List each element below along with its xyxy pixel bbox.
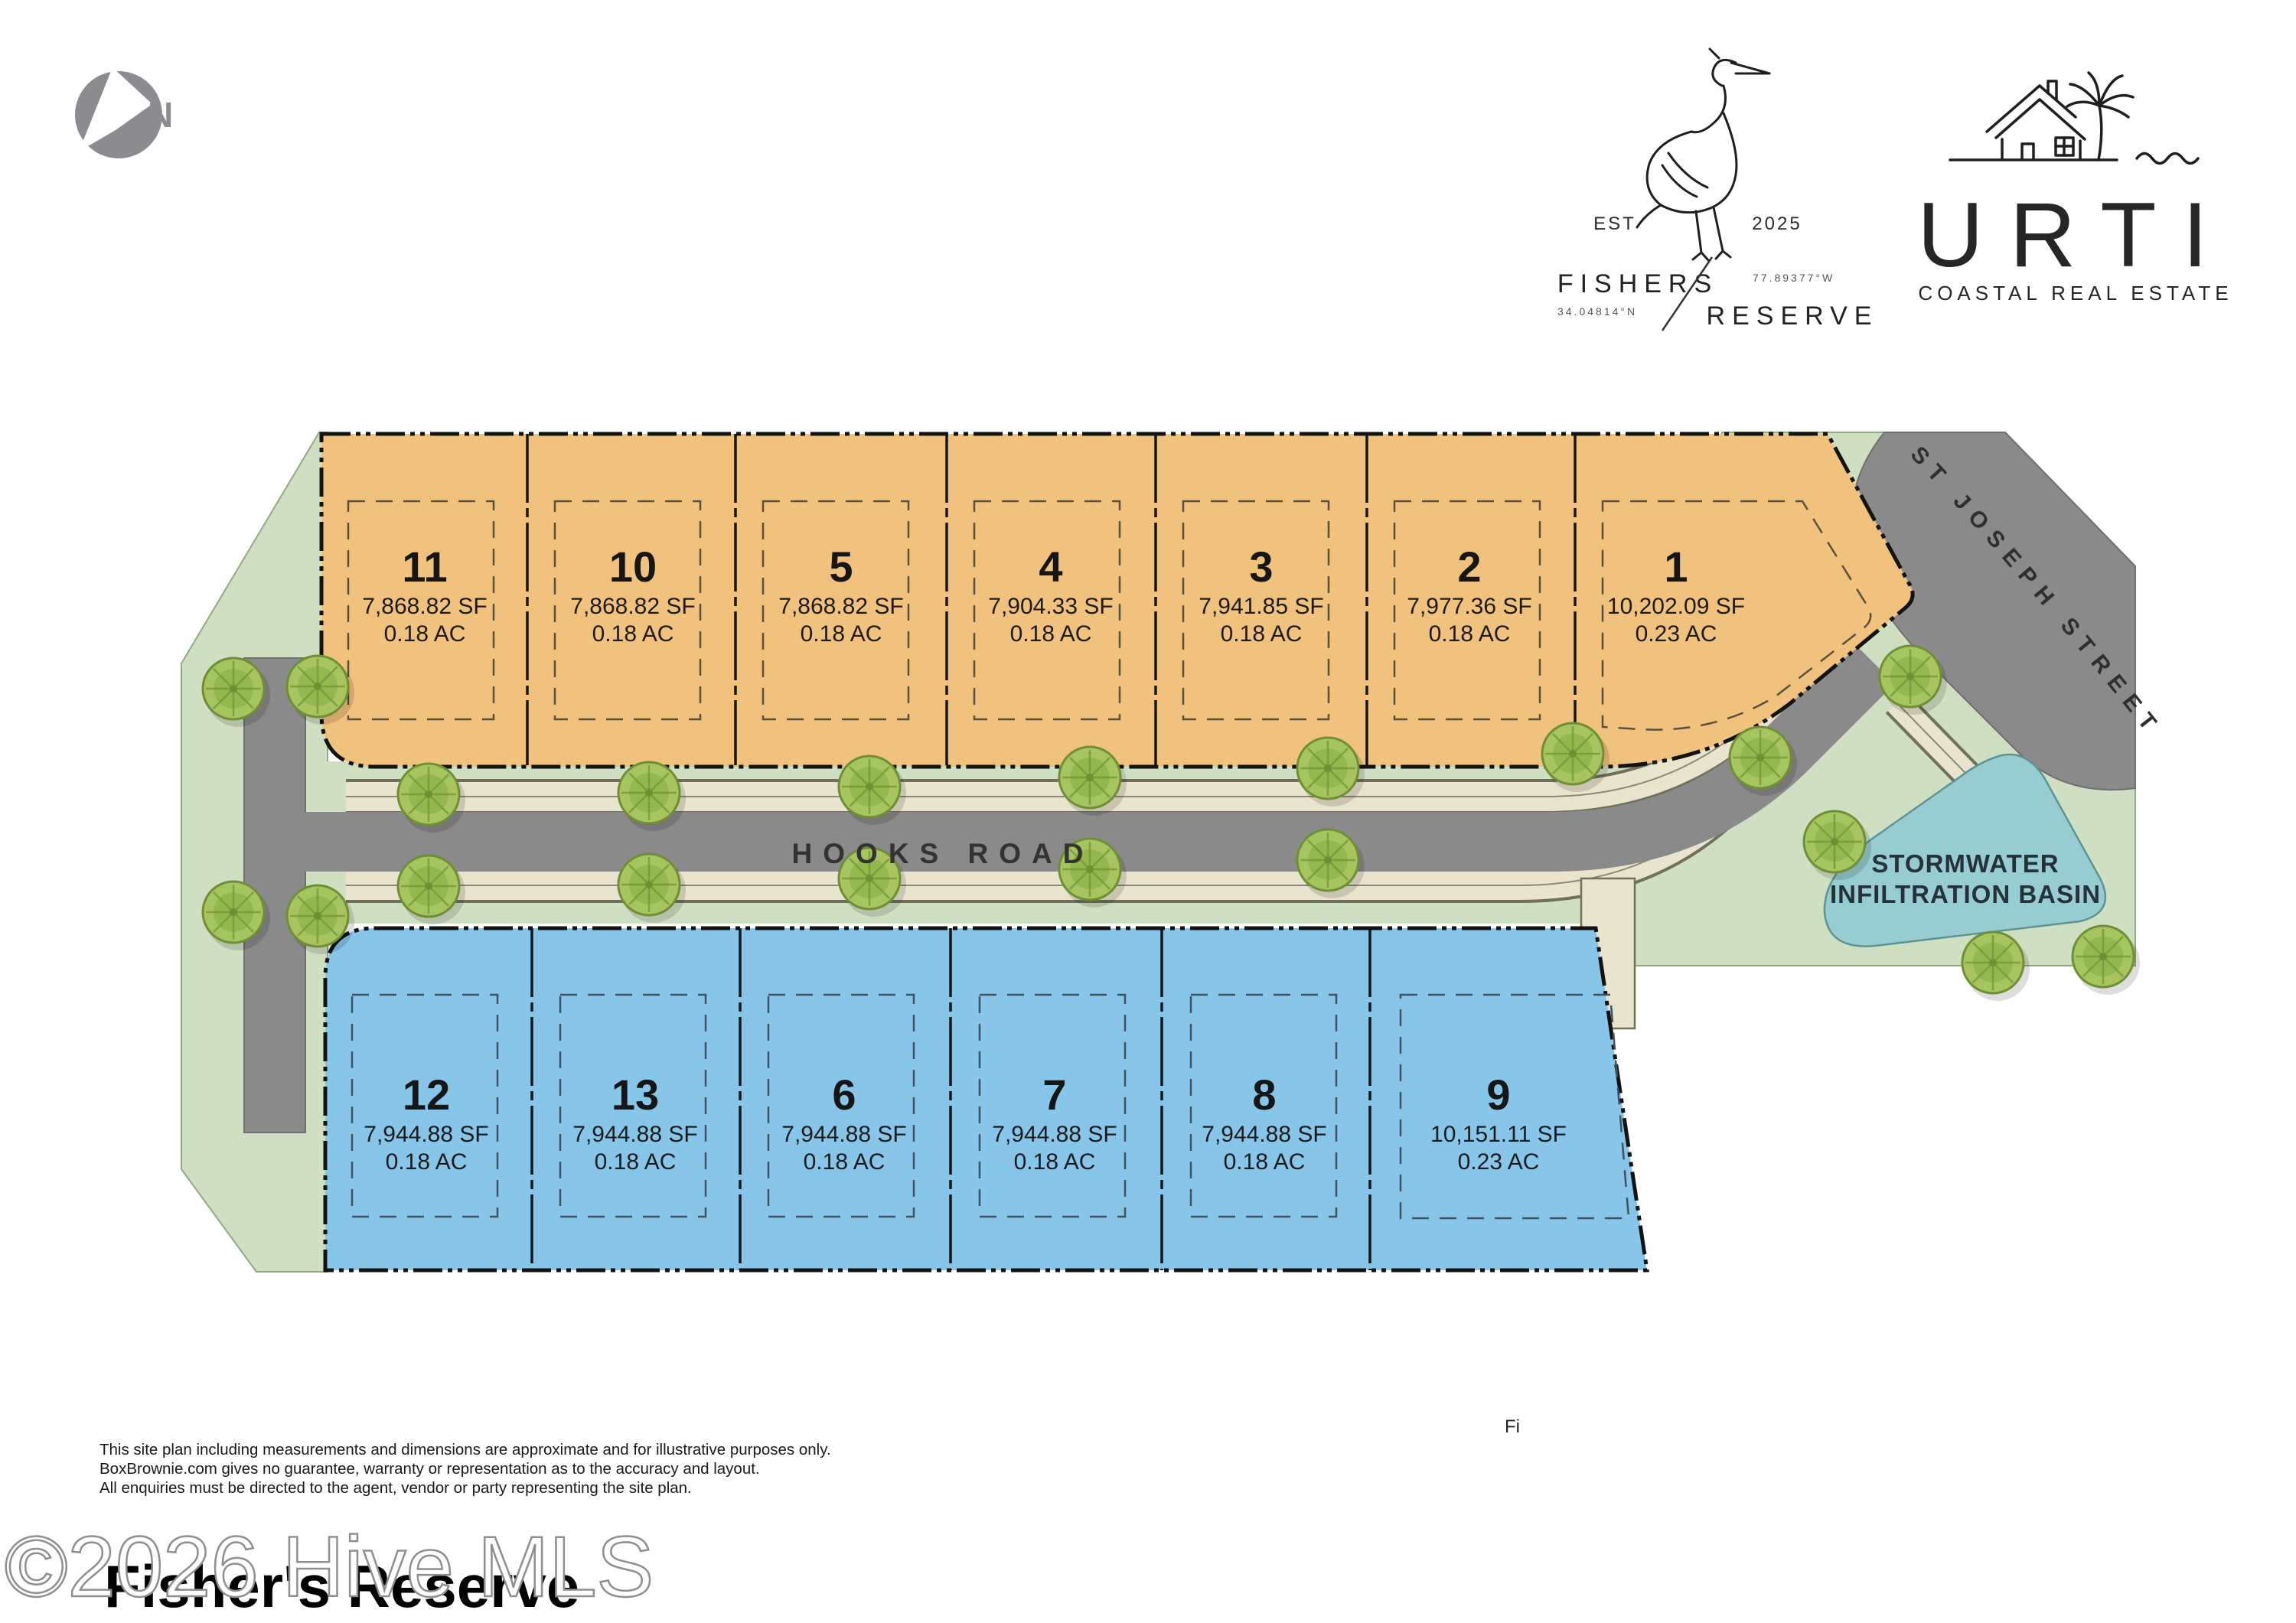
lot-area-ac: 0.18 AC	[1221, 621, 1303, 647]
lot-area-sf: 7,868.82 SF	[570, 594, 695, 619]
lot-area-sf: 7,944.88 SF	[1202, 1122, 1326, 1147]
lot-area-ac: 0.18 AC	[804, 1149, 885, 1175]
year-label: 2025	[1752, 213, 1802, 234]
urti-tagline: COASTAL REAL ESTATE	[1918, 282, 2232, 305]
lot-number: 12	[403, 1071, 450, 1119]
lot-area-ac: 0.23 AC	[1636, 621, 1717, 647]
heron-icon	[1637, 49, 1769, 260]
lot-area-sf: 7,944.88 SF	[364, 1122, 488, 1147]
lot-area-ac: 0.18 AC	[595, 1149, 677, 1175]
lot-number: 13	[612, 1071, 659, 1119]
lot-number: 2	[1457, 543, 1481, 591]
disclaimer-line2: BoxBrownie.com gives no guarantee, warra…	[99, 1460, 760, 1478]
hooks-road-label: HOOKS ROAD	[792, 838, 1094, 869]
fishers-reserve-logo: EST 2025 FISHERS RESERVE 77.89377°W 34.0…	[1557, 49, 1879, 331]
lot-area-ac: 0.18 AC	[592, 621, 674, 647]
lot-area-sf: 7,868.82 SF	[362, 594, 487, 619]
lot-area-ac: 0.18 AC	[1014, 1149, 1096, 1175]
lot-number: 1	[1664, 543, 1688, 591]
lot-area-sf: 7,868.82 SF	[778, 594, 903, 619]
lot-area-sf: 7,904.33 SF	[988, 594, 1113, 619]
lot-area-ac: 0.18 AC	[801, 621, 882, 647]
north-label: N	[148, 95, 173, 135]
urti-house-palm-icon	[1950, 73, 2198, 164]
lot-area-ac: 0.18 AC	[384, 621, 466, 647]
lot-area-sf: 10,202.09 SF	[1607, 594, 1745, 619]
reserve-wordmark: RESERVE	[1707, 301, 1879, 331]
lot-area-sf: 7,944.88 SF	[992, 1122, 1117, 1147]
lot-number: 4	[1039, 543, 1062, 591]
lot-number: 3	[1249, 543, 1273, 591]
latitude-label: 34.04814°N	[1557, 305, 1637, 318]
est-label: EST	[1593, 213, 1636, 234]
longitude-label: 77.89377°W	[1753, 272, 1835, 284]
lot-area-sf: 10,151.11 SF	[1430, 1122, 1567, 1147]
north-arrow: N	[75, 67, 173, 158]
site-plan-map: HOOKS ROAD ST JOSEPH STREET STORMWATER I…	[0, 0, 2296, 1623]
lot-area-sf: 7,944.88 SF	[572, 1122, 697, 1147]
lot-number: 8	[1252, 1071, 1276, 1119]
urti-logo: URTI COASTAL REAL ESTATE	[1917, 73, 2234, 305]
basin-label-line2: INFILTRATION BASIN	[1830, 880, 2101, 908]
basin-label-line1: STORMWATER	[1871, 849, 2059, 878]
disclaimer-line1: This site plan including measurements an…	[99, 1441, 831, 1458]
lot-area-ac: 0.18 AC	[1429, 621, 1511, 647]
mls-watermark: ©2026 Hive MLS	[5, 1519, 654, 1615]
lot-number: 6	[832, 1071, 856, 1119]
disclaimer-line3: All enquiries must be directed to the ag…	[99, 1479, 692, 1497]
stray-text: Fi	[1505, 1416, 1520, 1437]
lot-number: 5	[829, 543, 853, 591]
lot-area-sf: 7,977.36 SF	[1407, 594, 1531, 619]
urti-wordmark: URTI	[1917, 184, 2234, 286]
lot-area-sf: 7,941.85 SF	[1199, 594, 1323, 619]
lot-number: 11	[402, 543, 447, 591]
lot-area-ac: 0.23 AC	[1458, 1149, 1540, 1175]
lot-area-ac: 0.18 AC	[1010, 621, 1092, 647]
lot-area-sf: 7,944.88 SF	[781, 1122, 906, 1147]
lot-number: 7	[1042, 1071, 1066, 1119]
lot-area-ac: 0.18 AC	[386, 1149, 468, 1175]
lot-number: 9	[1486, 1071, 1510, 1119]
lot-area-ac: 0.18 AC	[1224, 1149, 1306, 1175]
lot-number: 10	[609, 543, 657, 591]
